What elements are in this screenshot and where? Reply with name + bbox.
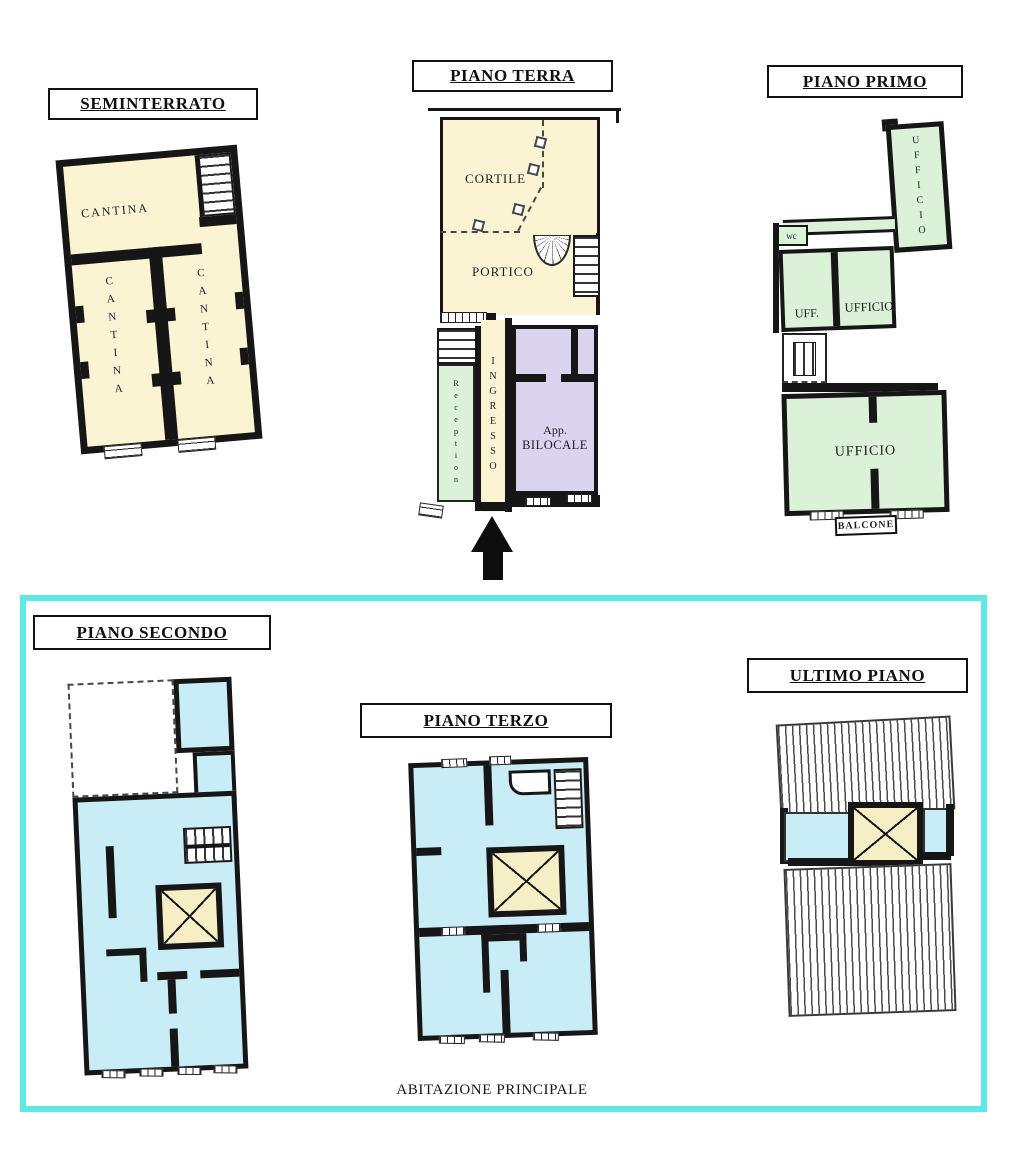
room-label-portico: PORTICO bbox=[472, 265, 534, 278]
room-label-bilocale-app: App. bbox=[516, 424, 594, 436]
window bbox=[139, 1068, 163, 1076]
plan-piano-primo: UFFICIO wc UFF. UFFICIO UFFICIO BALCONE bbox=[770, 115, 970, 545]
plan-piano-terzo bbox=[408, 757, 598, 1041]
lightwell bbox=[155, 882, 224, 950]
room-ingresso: INGRESSO bbox=[481, 320, 505, 512]
window bbox=[533, 1032, 559, 1040]
staircase bbox=[437, 328, 477, 364]
title-piano-primo: PIANO PRIMO bbox=[803, 72, 927, 92]
wall bbox=[561, 374, 594, 382]
window bbox=[441, 758, 467, 768]
window bbox=[102, 1070, 126, 1078]
lightwell bbox=[486, 845, 566, 918]
window bbox=[566, 494, 592, 503]
wall bbox=[167, 979, 176, 1013]
room-label-ufficio-main: UFFICIO bbox=[788, 443, 943, 461]
window bbox=[525, 497, 551, 506]
staircase bbox=[793, 342, 816, 376]
window bbox=[177, 1067, 201, 1075]
wall-pilaster bbox=[240, 347, 249, 365]
title-box-piano-primo: PIANO PRIMO bbox=[767, 65, 963, 98]
window bbox=[177, 437, 216, 453]
room-label-ufficio-tower: UFFICIO bbox=[910, 134, 928, 240]
wall bbox=[616, 108, 619, 123]
entrance-arrow-stem bbox=[483, 551, 503, 580]
wall-pilaster bbox=[235, 292, 244, 310]
window bbox=[213, 1065, 237, 1073]
room-label-uff: UFF. bbox=[795, 307, 819, 320]
wall bbox=[869, 397, 878, 423]
window bbox=[489, 756, 511, 766]
window bbox=[537, 923, 561, 933]
staircase bbox=[195, 152, 236, 217]
wall bbox=[170, 1028, 180, 1066]
wall-pilaster bbox=[75, 306, 84, 324]
room-bilocale: App. BILOCALE bbox=[512, 325, 598, 495]
room-label-cortile: CORTILE bbox=[465, 172, 526, 185]
plan-seminterrato: CANTINA CANTINA CANTINA bbox=[55, 145, 262, 455]
sheet-caption: ABITAZIONE PRINCIPALE bbox=[352, 1082, 632, 1099]
rooms-uff-ufficio: UFF. UFFICIO bbox=[779, 246, 897, 332]
wall bbox=[519, 933, 527, 961]
room-ufficio-main: UFFICIO bbox=[781, 390, 949, 516]
wall bbox=[139, 948, 147, 982]
stairwell bbox=[782, 333, 827, 383]
window bbox=[440, 312, 487, 323]
wall-boundary bbox=[428, 108, 621, 111]
title-box-seminterrato: SEMINTERRATO bbox=[48, 88, 258, 120]
stair-landing bbox=[186, 843, 230, 849]
entry-steps bbox=[418, 502, 444, 518]
room-wc: wc bbox=[775, 225, 808, 246]
staircase bbox=[573, 235, 600, 297]
roof-hatch bbox=[783, 863, 956, 1017]
title-box-piano-terra: PIANO TERRA bbox=[412, 60, 613, 92]
staircase bbox=[553, 768, 583, 829]
window bbox=[479, 1034, 505, 1042]
dashed-boundary bbox=[542, 120, 544, 188]
title-piano-terzo: PIANO TERZO bbox=[424, 711, 549, 731]
staircase bbox=[183, 826, 233, 864]
wall bbox=[505, 318, 512, 512]
wall-pilaster bbox=[146, 308, 176, 323]
wall bbox=[516, 374, 546, 382]
room-label-balcone: BALCONE bbox=[838, 519, 895, 532]
title-box-piano-terzo: PIANO TERZO bbox=[360, 703, 612, 738]
entrance-arrow-icon bbox=[471, 516, 513, 552]
title-seminterrato: SEMINTERRATO bbox=[80, 94, 225, 114]
wall bbox=[831, 252, 841, 326]
wall-pilaster bbox=[151, 371, 181, 386]
unbuilt-area bbox=[67, 679, 178, 798]
wall bbox=[571, 329, 578, 374]
title-piano-terra: PIANO TERRA bbox=[450, 66, 575, 86]
room bbox=[784, 812, 850, 862]
balcone-box: BALCONE bbox=[835, 515, 898, 536]
room-label-cantina-left: CANTINA bbox=[103, 275, 125, 401]
main-body bbox=[72, 791, 248, 1076]
wall bbox=[500, 970, 510, 1033]
wall bbox=[870, 469, 879, 509]
wall bbox=[416, 847, 441, 856]
wall bbox=[481, 935, 490, 993]
wall bbox=[946, 804, 954, 856]
room-reception: Reception bbox=[437, 364, 475, 502]
room-label-ingresso: INGRESSO bbox=[488, 356, 499, 476]
wall bbox=[788, 858, 850, 866]
plan-ultimo-piano bbox=[768, 712, 963, 1020]
wall-pilaster bbox=[80, 361, 89, 379]
title-box-piano-secondo: PIANO SECONDO bbox=[33, 615, 271, 650]
title-box-ultimo-piano: ULTIMO PIANO bbox=[747, 658, 968, 693]
wall bbox=[200, 969, 239, 979]
title-piano-secondo: PIANO SECONDO bbox=[77, 623, 228, 643]
room-ufficio-tower: UFFICIO bbox=[886, 121, 953, 253]
room-label-cantina-top: CANTINA bbox=[81, 202, 150, 220]
window bbox=[439, 1036, 465, 1044]
lightwell bbox=[848, 802, 923, 866]
window bbox=[104, 443, 143, 459]
window bbox=[441, 926, 465, 936]
room-label-ufficio-mid: UFFICIO bbox=[844, 300, 893, 314]
wall bbox=[773, 223, 779, 333]
room-label-wc: wc bbox=[786, 231, 797, 241]
room-label-cantina-right: CANTINA bbox=[194, 267, 216, 393]
room bbox=[173, 677, 234, 753]
room-label-reception: Reception bbox=[452, 379, 461, 487]
wall bbox=[199, 214, 237, 227]
plan-piano-secondo bbox=[59, 668, 262, 1086]
floorplan-sheet: SEMINTERRATO CANTINA CANTINA CANTINA PIA… bbox=[0, 0, 1024, 1155]
room-label-bilocale-name: BILOCALE bbox=[516, 439, 594, 452]
title-ultimo-piano: ULTIMO PIANO bbox=[790, 666, 926, 686]
room bbox=[509, 769, 552, 795]
wall bbox=[475, 502, 505, 511]
wall bbox=[483, 765, 493, 825]
plan-piano-terra: CORTILE PORTICO Reception INGRESSO bbox=[425, 112, 610, 517]
wall bbox=[148, 247, 178, 440]
wall bbox=[71, 243, 202, 265]
wall bbox=[106, 846, 117, 918]
